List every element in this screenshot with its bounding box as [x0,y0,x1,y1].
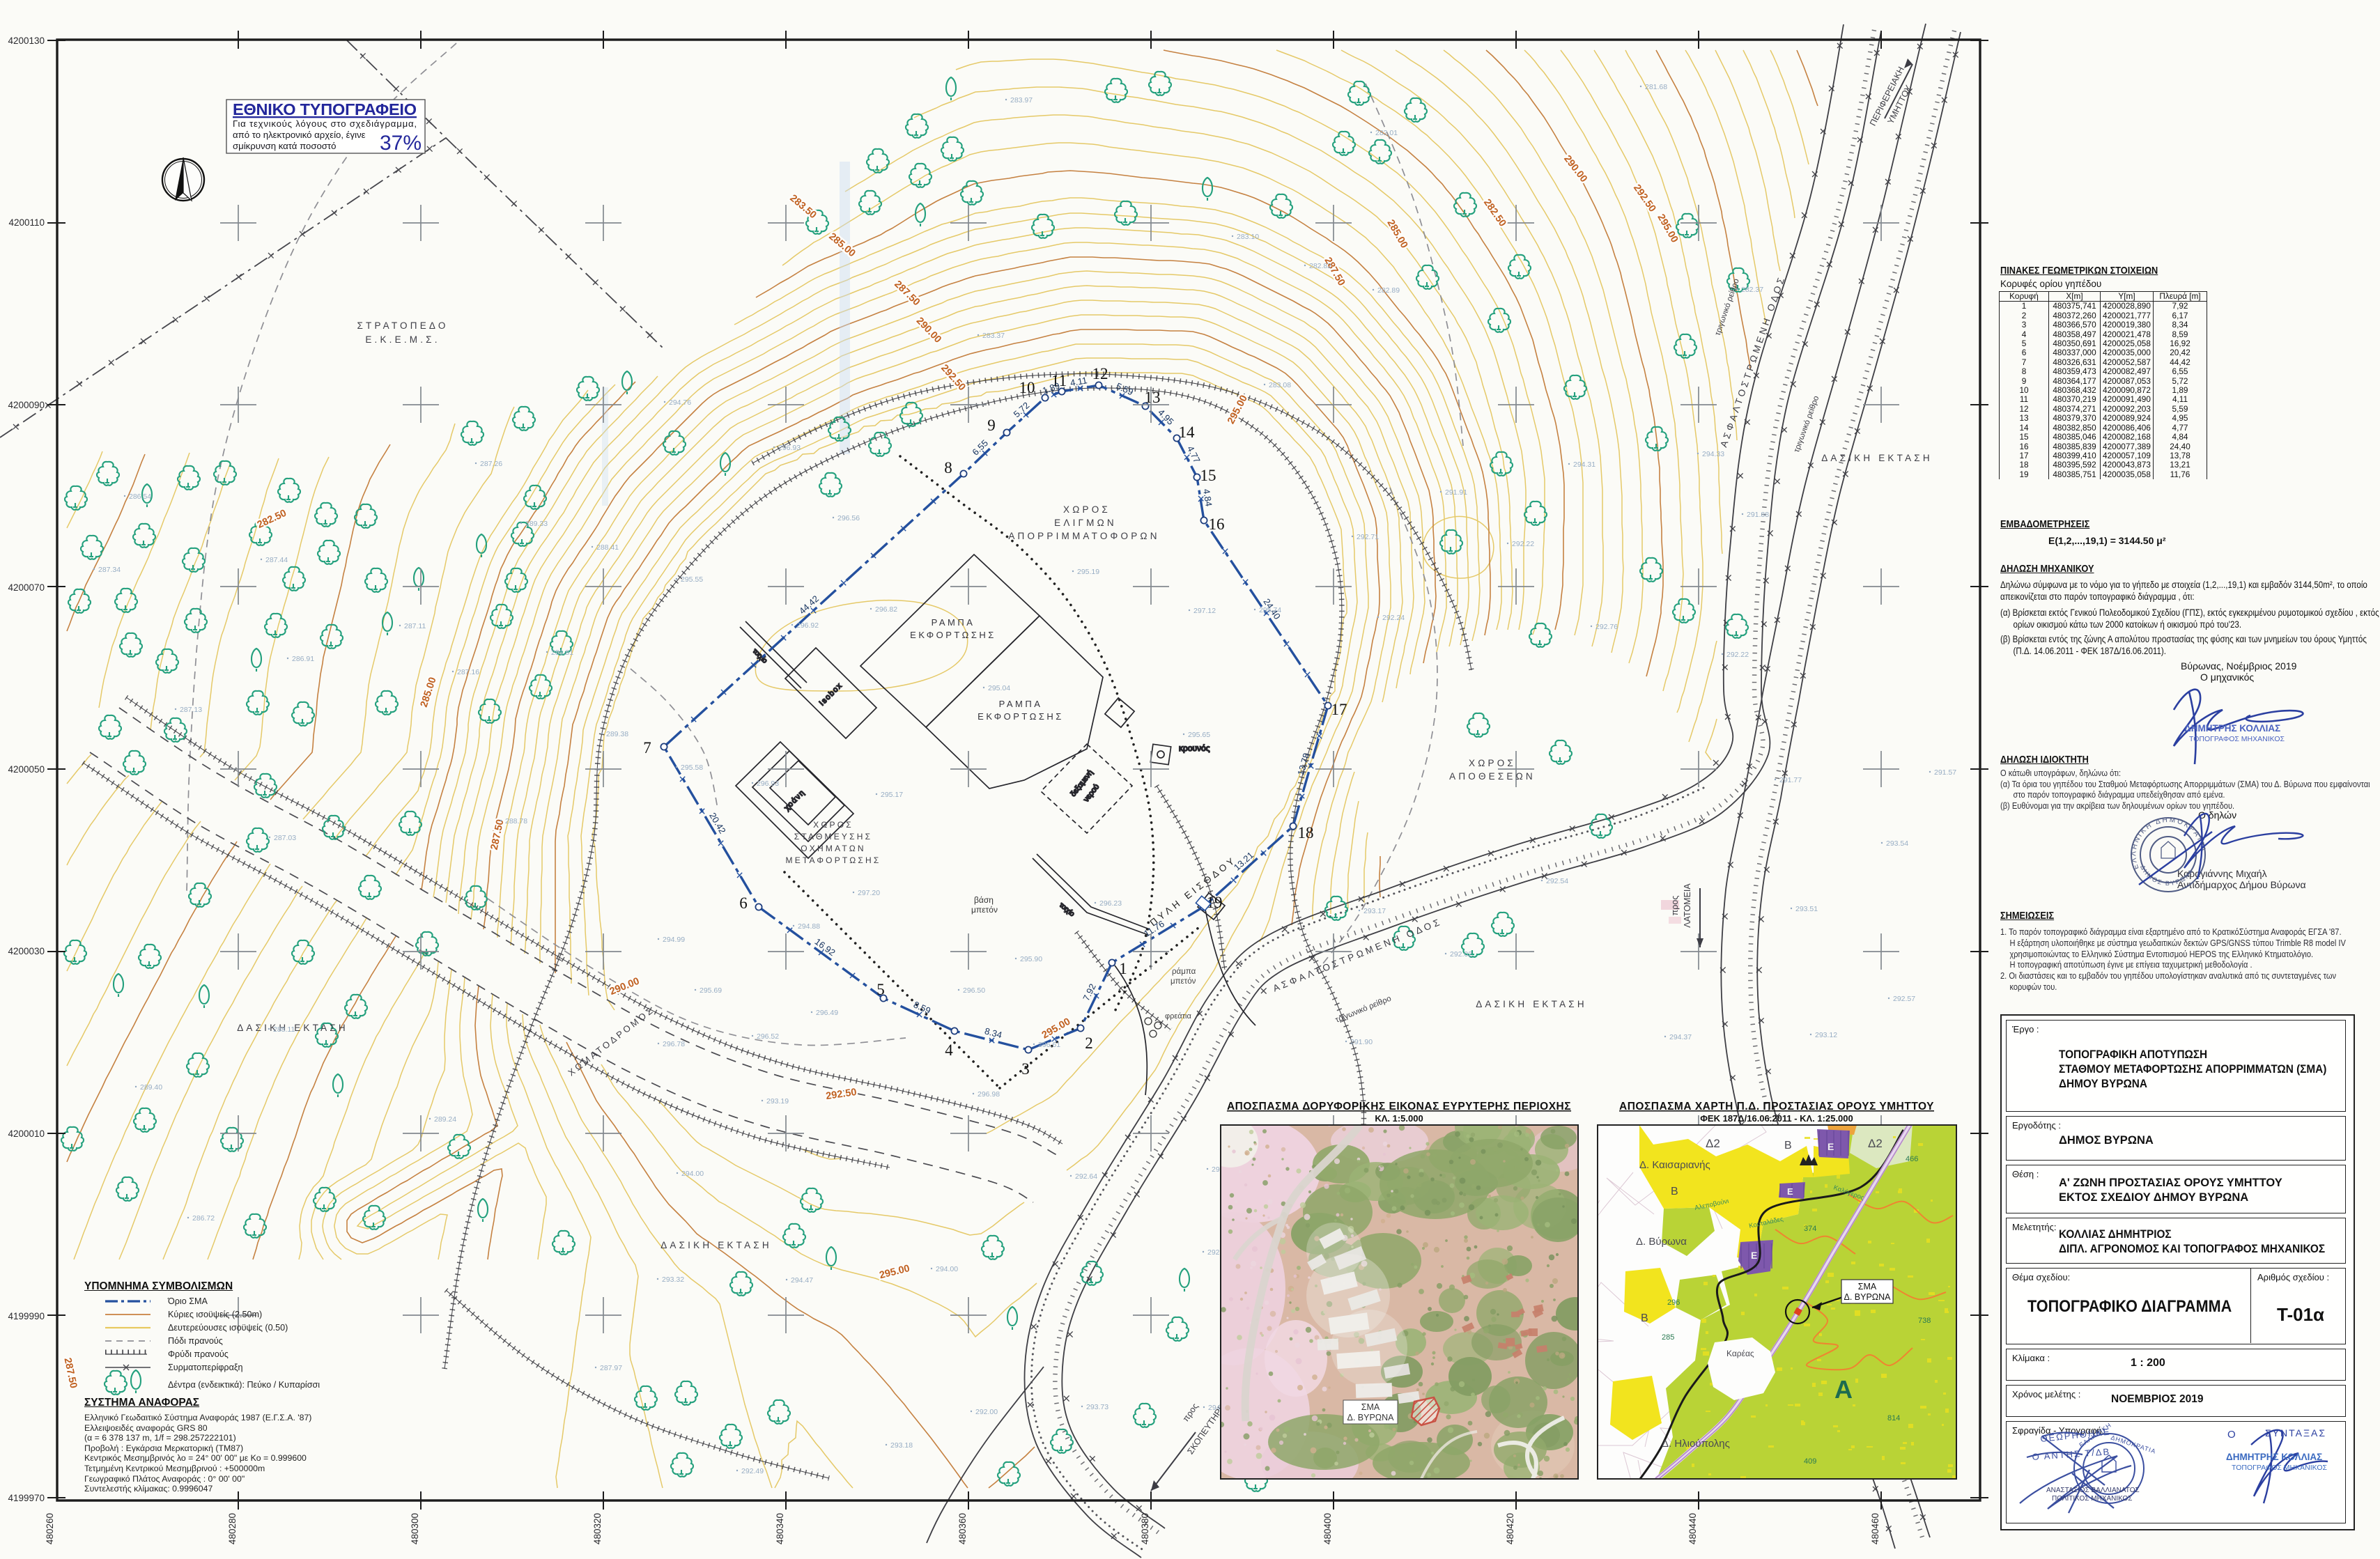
svg-text:ΑΣΦΑΛΤΟΣΤΡΩΜΕΝΗ ΟΔΟΣ: ΑΣΦΑΛΤΟΣΤΡΩΜΕΝΗ ΟΔΟΣ [1272,916,1444,993]
svg-text:294.37: 294.37 [1669,1033,1692,1041]
svg-text:374: 374 [1804,1225,1816,1233]
svg-text:286.81: 286.81 [551,649,573,657]
svg-text:293.73: 293.73 [1086,1403,1108,1411]
svg-text:Δέντρα (ενδεικτικά): Πεύκο / Κ: Δέντρα (ενδεικτικά): Πεύκο / Κυπαρίσσι [168,1380,320,1390]
svg-text:14: 14 [1179,424,1196,441]
svg-text:480340: 480340 [775,1513,785,1544]
svg-text:ΜΕΤΑΦΟΡΤΩΣΗΣ: ΜΕΤΑΦΟΡΤΩΣΗΣ [786,855,881,865]
svg-text:287.50: 287.50 [1322,256,1347,288]
svg-text:ΔΗΜΗΤΡΗΣ ΚΟΛΛΙΑΣ: ΔΗΜΗΤΡΗΣ ΚΟΛΛΙΑΣ [2226,1452,2322,1462]
svg-text:Δ. Βύρωνα: Δ. Βύρωνα [1636,1236,1687,1248]
svg-text:292.57: 292.57 [1893,995,1915,1003]
svg-text:ΣΤΡΑΤΟΠΕΔΟ: ΣΤΡΑΤΟΠΕΔΟ [357,320,448,331]
svg-text:ΕΘΝΙΚΟ ΤΥΠΟΓΡΑΦΕΙΟ: ΕΘΝΙΚΟ ΤΥΠΟΓΡΑΦΕΙΟ [233,100,417,118]
svg-text:295.00: 295.00 [1226,394,1250,426]
svg-text:293.51: 293.51 [1795,905,1818,913]
svg-text:281.68: 281.68 [1645,83,1667,91]
svg-text:Β: Β [1671,1186,1678,1197]
svg-text:289.24: 289.24 [434,1115,456,1124]
svg-text:ΔΗΜΗΤΡΗΣ ΚΟΛΛΙΑΣ: ΔΗΜΗΤΡΗΣ ΚΟΛΛΙΑΣ [2184,723,2280,734]
svg-text:Φρύδι πρανούς: Φρύδι πρανούς [168,1349,229,1359]
svg-text:286.54: 286.54 [129,492,151,501]
svg-text:296.93: 296.93 [778,444,801,452]
svg-text:16: 16 [1209,515,1225,533]
svg-text:738: 738 [1918,1317,1931,1325]
svg-text:Ο: Ο [2227,1429,2236,1441]
svg-text:βάση: βάση [974,895,994,905]
svg-text:295.58: 295.58 [681,763,703,772]
svg-text:17: 17 [1331,701,1347,718]
svg-text:Ε: Ε [1827,1141,1834,1152]
svg-text:15: 15 [1200,467,1216,484]
svg-text:296.23: 296.23 [1099,899,1122,908]
svg-text:296.49: 296.49 [816,1009,838,1017]
svg-text:1: 1 [1119,960,1127,977]
svg-text:295.69: 295.69 [700,986,722,995]
svg-text:τοιχίο: τοιχίο [751,647,769,665]
svg-text:4200050: 4200050 [8,764,45,775]
svg-text:4200070: 4200070 [8,582,45,593]
svg-text:296.50: 296.50 [963,986,985,995]
svg-text:290.00: 290.00 [1561,153,1589,185]
svg-text:287.16: 287.16 [457,668,479,676]
svg-text:φρεάτια: φρεάτια [1165,1012,1191,1021]
svg-text:4.95: 4.95 [1156,407,1176,427]
svg-text:χοάνη: χοάνη [782,788,807,812]
svg-text:5.72: 5.72 [1012,400,1032,419]
svg-text:480440: 480440 [1687,1513,1698,1544]
svg-text:409: 409 [1804,1457,1816,1466]
svg-text:294.00: 294.00 [681,1170,704,1178]
svg-text:ΕΚΦΟΡΤΩΣΗΣ: ΕΚΦΟΡΤΩΣΗΣ [977,711,1064,722]
svg-text:Συρματοπερίφραξη: Συρματοπερίφραξη [168,1363,243,1372]
svg-text:Για τεχνικούς λόγους στο σχεδι: Για τεχνικούς λόγους στο σχεδιάγραμμα, [233,118,417,129]
svg-text:Α: Α [1834,1375,1853,1404]
svg-text:295.90: 295.90 [1020,955,1042,963]
svg-text:294.88: 294.88 [798,922,820,931]
svg-text:ΑΠΟΣΠΑΣΜΑ ΔΟΡΥΦΟΡΙΚΗΣ ΕΙΚΟΝΑΣ: ΑΠΟΣΠΑΣΜΑ ΔΟΡΥΦΟΡΙΚΗΣ ΕΙΚΟΝΑΣ ΕΥΡΥΤΕΡΗΣ … [1227,1101,1571,1112]
svg-text:480460: 480460 [1870,1513,1880,1544]
svg-text:295.17: 295.17 [881,791,903,799]
svg-text:4200110: 4200110 [8,217,45,228]
svg-text:12: 12 [1092,365,1108,382]
svg-text:291.57: 291.57 [1934,768,1956,777]
svg-text:ΕΚΦΟΡΤΩΣΗΣ: ΕΚΦΟΡΤΩΣΗΣ [910,630,996,640]
svg-text:ΛΑΤΟΜΕΙΑ: ΛΑΤΟΜΕΙΑ [1683,883,1692,928]
svg-text:297.20: 297.20 [858,889,880,897]
svg-text:Δευτερεύουσες ισοϋψείς (0.50): Δευτερεύουσες ισοϋψείς (0.50) [168,1323,288,1333]
svg-text:προς: προς [1181,1402,1200,1424]
svg-text:296.61: 296.61 [1038,1041,1060,1049]
svg-text:293.19: 293.19 [766,1097,789,1106]
svg-text:4.84: 4.84 [1201,488,1214,507]
svg-text:ΦΕΚ 187Δ/16.06.2011 - ΚΛ. 1:: ΦΕΚ 187Δ/16.06.2011 - ΚΛ. 1:25.000 [1700,1113,1853,1124]
svg-text:μπετόν: μπετόν [1170,977,1196,986]
svg-text:Ε: Ε [1787,1186,1793,1197]
svg-text:282.82: 282.82 [1309,262,1331,270]
svg-text:7: 7 [643,739,651,757]
svg-text:Δ. Καισαριανής: Δ. Καισαριανής [1639,1159,1710,1171]
svg-text:296.98: 296.98 [977,1090,1000,1099]
svg-text:3: 3 [1021,1060,1030,1078]
svg-text:292.54: 292.54 [1546,877,1568,885]
svg-text:296.93: 296.93 [757,779,779,788]
svg-text:5.59: 5.59 [1115,380,1135,397]
svg-text:ΧΩΡΟΣ: ΧΩΡΟΣ [1063,504,1111,515]
svg-text:Ε.Κ.Ε.Μ.Σ.: Ε.Κ.Ε.Μ.Σ. [365,334,440,345]
svg-text:295.74: 295.74 [1259,606,1281,614]
svg-text:293.54: 293.54 [1886,839,1908,848]
svg-text:287.44: 287.44 [265,556,288,564]
svg-text:296: 296 [1667,1298,1680,1307]
svg-text:291.88: 291.88 [1747,511,1769,519]
svg-text:287.97: 287.97 [600,1364,622,1372]
svg-text:287.26: 287.26 [480,460,502,468]
svg-text:4199990: 4199990 [8,1311,45,1321]
svg-text:287.13: 287.13 [180,706,202,714]
svg-text:282.50: 282.50 [256,508,288,531]
svg-text:294.33: 294.33 [1702,450,1724,458]
svg-text:ΚΛ. 1:5.000: ΚΛ. 1:5.000 [1375,1113,1423,1124]
svg-text:294.76: 294.76 [669,398,691,407]
svg-text:295.00: 295.00 [879,1263,911,1281]
svg-text:292.76: 292.76 [1595,623,1618,631]
svg-text:292.22: 292.22 [1512,540,1534,548]
svg-text:13: 13 [1145,389,1161,406]
svg-text:προς: προς [1670,896,1680,916]
svg-text:τριγωνικό ρείθρο: τριγωνικό ρείθρο [1714,278,1741,337]
svg-text:8.34: 8.34 [984,1025,1003,1040]
svg-text:296.52: 296.52 [757,1032,779,1041]
svg-text:ΔΑΣΙΚΗ ΕΚΤΑΣΗ: ΔΑΣΙΚΗ ΕΚΤΑΣΗ [1476,999,1587,1009]
svg-text:288.11: 288.11 [273,1025,295,1034]
svg-text:480380: 480380 [1140,1513,1150,1544]
svg-text:296.78: 296.78 [663,1040,685,1048]
svg-text:282.50: 282.50 [1481,197,1508,229]
svg-text:10: 10 [1019,379,1035,396]
svg-text:297.12: 297.12 [1193,607,1216,615]
svg-text:289.33: 289.33 [525,520,548,528]
svg-text:288.78: 288.78 [505,817,527,825]
svg-text:292.50: 292.50 [825,1087,857,1102]
svg-text:ΘΕΩΡΗΘΗΚΕ: ΘΕΩΡΗΘΗΚΕ [2040,1426,2111,1444]
svg-text:τριγωνικό ρείθρο: τριγωνικό ρείθρο [1334,995,1393,1025]
svg-text:Καρέας: Καρέας [1726,1349,1754,1358]
svg-text:291.90: 291.90 [1350,1038,1373,1046]
svg-text:294.00: 294.00 [936,1265,958,1273]
svg-text:283.10: 283.10 [1237,233,1259,241]
svg-text:283.37: 283.37 [982,332,1005,340]
svg-text:ΧΩΡΟΣ: ΧΩΡΟΣ [1469,758,1516,768]
svg-text:τριγωνικό ρείθρο: τριγωνικό ρείθρο [1793,395,1821,453]
svg-text:4200090: 4200090 [8,400,45,410]
svg-text:480420: 480420 [1505,1513,1515,1544]
svg-text:4: 4 [945,1041,953,1059]
svg-text:283.97: 283.97 [1010,96,1033,104]
svg-text:295.19: 295.19 [1077,568,1099,576]
svg-text:480260: 480260 [45,1513,55,1544]
svg-text:ΕΛΙΓΜΩΝ: ΕΛΙΓΜΩΝ [1054,518,1117,528]
svg-text:Κύριες ισοϋψείς (2.50m): Κύριες ισοϋψείς (2.50m) [168,1310,262,1319]
svg-text:2: 2 [1085,1034,1093,1052]
svg-text:287.34: 287.34 [98,566,121,574]
svg-text:τοιχίο: τοιχίο [1058,901,1076,918]
svg-text:283.08: 283.08 [1269,381,1291,389]
svg-text:ΔΑΣΙΚΗ ΕΚΤΑΣΗ: ΔΑΣΙΚΗ ΕΚΤΑΣΗ [660,1240,772,1250]
svg-text:Δ2: Δ2 [1868,1137,1883,1150]
svg-text:ΑΠΟΡΡΙΜΜΑΤΟΦΟΡΩΝ: ΑΠΟΡΡΙΜΜΑΤΟΦΟΡΩΝ [1008,531,1159,541]
svg-text:ΤΟΠΟΓΡΑΦΟΣ ΜΗΧΑΝΙΚΟΣ: ΤΟΠΟΓΡΑΦΟΣ ΜΗΧΑΝΙΚΟΣ [2232,1464,2327,1472]
svg-text:9: 9 [987,417,996,434]
svg-text:ράμπα: ράμπα [1172,968,1196,976]
svg-text:ΡΑΜΠΑ: ΡΑΜΠΑ [932,617,975,628]
svg-text:285.00: 285.00 [1384,218,1409,250]
svg-text:282.37: 282.37 [1741,286,1763,294]
svg-text:282.89: 282.89 [1377,286,1400,295]
svg-text:6.55: 6.55 [970,437,990,457]
svg-text:37%: 37% [380,132,422,155]
svg-text:5: 5 [876,981,885,998]
svg-text:292.71: 292.71 [1357,533,1379,541]
svg-text:292.00: 292.00 [975,1408,998,1416]
svg-text:ΠΟΛΙΤΙΚΟΣ ΜΗΧΑΝΙΚΟΣ: ΠΟΛΙΤΙΚΟΣ ΜΗΧΑΝΙΚΟΣ [2052,1495,2132,1503]
svg-text:292.02: 292.02 [1450,950,1472,959]
svg-text:288.41: 288.41 [596,543,619,552]
svg-text:ΧΩΜΑΤΟΔΡΟΜΟΣ: ΧΩΜΑΤΟΔΡΟΜΟΣ [566,1004,656,1078]
svg-text:4199970: 4199970 [8,1493,45,1503]
svg-text:4200030: 4200030 [8,946,45,956]
svg-text:292.64: 292.64 [1075,1172,1097,1181]
svg-text:ΑΠΟΘΕΣΕΩΝ: ΑΠΟΘΕΣΕΩΝ [1449,771,1536,782]
svg-text:Δ. ΒΥΡΩΝΑ: Δ. ΒΥΡΩΝΑ [1844,1292,1891,1302]
svg-text:44.42: 44.42 [797,594,821,616]
svg-text:283.50: 283.50 [787,193,818,222]
svg-text:292.50: 292.50 [1631,183,1658,215]
svg-text:287.03: 287.03 [274,834,296,842]
svg-text:ΣΥΝΤΑΞΑΣ: ΣΥΝΤΑΞΑΣ [2265,1427,2326,1438]
svg-text:ΔΑΣΙΚΗ ΕΚΤΑΣΗ: ΔΑΣΙΚΗ ΕΚΤΑΣΗ [1821,453,1933,463]
svg-text:289.40: 289.40 [140,1083,162,1092]
svg-text:ΑΝΑΣΤΑΣΙΟΣ ΒΑΛΛΙΑΝΑΤΟΣ: ΑΝΑΣΤΑΣΙΟΣ ΒΑΛΛΙΑΝΑΤΟΣ [2046,1487,2140,1494]
svg-text:σμίκρυνση κατά ποσοστό: σμίκρυνση κατά ποσοστό [233,141,336,151]
svg-text:285: 285 [1662,1333,1674,1342]
svg-text:286.91: 286.91 [292,655,314,663]
svg-text:466: 466 [1906,1155,1918,1163]
svg-text:ΔΗΜΟΣ ΒΥΡΩΝΑ: ΔΗΜΟΣ ΒΥΡΩΝΑ [2139,864,2195,887]
svg-text:295.55: 295.55 [681,575,703,584]
svg-text:18: 18 [1298,824,1314,841]
svg-text:480360: 480360 [957,1513,968,1544]
svg-text:ΣΜΑ: ΣΜΑ [1858,1282,1877,1292]
svg-text:292.22: 292.22 [1726,651,1749,659]
svg-text:289.38: 289.38 [606,730,628,738]
svg-text:480320: 480320 [592,1513,603,1544]
svg-text:Β: Β [1784,1140,1792,1151]
svg-text:293.32: 293.32 [662,1275,684,1284]
svg-text:ΠΥΛΗ ΕΙΣΟΔΟΥ: ΠΥΛΗ ΕΙΣΟΔΟΥ [1148,854,1239,928]
svg-text:480400: 480400 [1322,1513,1333,1544]
svg-text:294.31: 294.31 [1573,460,1595,469]
svg-text:ΧΩΡΟΣ: ΧΩΡΟΣ [813,820,853,830]
svg-text:293.18: 293.18 [890,1441,913,1450]
svg-text:6: 6 [739,894,748,912]
svg-text:814: 814 [1887,1414,1900,1422]
svg-text:ΡΑΜΠΑ: ΡΑΜΠΑ [999,699,1043,709]
svg-text:Δ. Ηλιούπολης: Δ. Ηλιούπολης [1662,1438,1730,1450]
svg-text:κρουνός: κρουνός [1179,743,1210,753]
svg-text:294.47: 294.47 [791,1276,813,1285]
svg-text:Isobox: Isobox [818,681,844,708]
svg-text:287.11: 287.11 [404,622,426,630]
svg-text:287.50: 287.50 [61,1357,79,1390]
svg-text:Πόδι πρανούς: Πόδι πρανούς [168,1336,223,1346]
svg-text:291.91: 291.91 [1445,488,1467,497]
svg-text:294.99: 294.99 [663,936,685,944]
svg-text:4200130: 4200130 [8,36,45,46]
svg-text:από το ηλεκτρονικό αρχείο, έγι: από το ηλεκτρονικό αρχείο, έγινε [233,130,366,140]
svg-text:μπετόν: μπετόν [971,905,998,915]
svg-text:296.82: 296.82 [875,605,897,614]
svg-text:291.77: 291.77 [1779,776,1802,784]
svg-text:296.92: 296.92 [796,621,819,630]
svg-text:ΟΧΗΜΑΤΩΝ: ΟΧΗΜΑΤΩΝ [801,844,865,853]
svg-text:286.72: 286.72 [192,1214,215,1223]
svg-text:ΣΤΑΘΜΕΥΣΗΣ: ΣΤΑΘΜΕΥΣΗΣ [794,832,872,841]
svg-text:287.50: 287.50 [892,279,922,308]
svg-text:282.01: 282.01 [1375,129,1398,137]
svg-text:4.11: 4.11 [1069,375,1088,388]
svg-text:293.12: 293.12 [1815,1031,1837,1039]
svg-text:293.17: 293.17 [1363,907,1386,915]
svg-text:8: 8 [944,459,952,476]
svg-text:295.04: 295.04 [988,684,1010,692]
svg-text:480280: 480280 [227,1513,238,1544]
svg-text:292.50: 292.50 [938,362,968,393]
svg-text:4200010: 4200010 [8,1128,45,1139]
svg-text:295.65: 295.65 [1188,731,1210,739]
svg-text:Όριο ΣΜΑ: Όριο ΣΜΑ [167,1296,208,1306]
svg-text:296.56: 296.56 [837,514,860,522]
svg-text:Β: Β [1641,1312,1648,1324]
svg-text:292.49: 292.49 [741,1467,764,1475]
svg-text:Δ2: Δ2 [1706,1137,1720,1150]
svg-text:ΑΠΟΣΠΑΣΜΑ ΧΑΡΤΗ Π.Δ. ΠΡΟΣΤΑΣΙΑ: ΑΠΟΣΠΑΣΜΑ ΧΑΡΤΗ Π.Δ. ΠΡΟΣΤΑΣΙΑΣ ΟΡΟΥΣ ΥΜ… [1619,1101,1934,1112]
svg-text:Ε: Ε [1751,1250,1757,1261]
svg-text:292.24: 292.24 [1382,614,1405,622]
svg-text:480300: 480300 [410,1513,420,1544]
svg-text:ΤΟΠΟΓΡΑΦΟΣ ΜΗΧΑΝΙΚΟΣ: ΤΟΠΟΓΡΑΦΟΣ ΜΗΧΑΝΙΚΟΣ [2189,735,2285,743]
